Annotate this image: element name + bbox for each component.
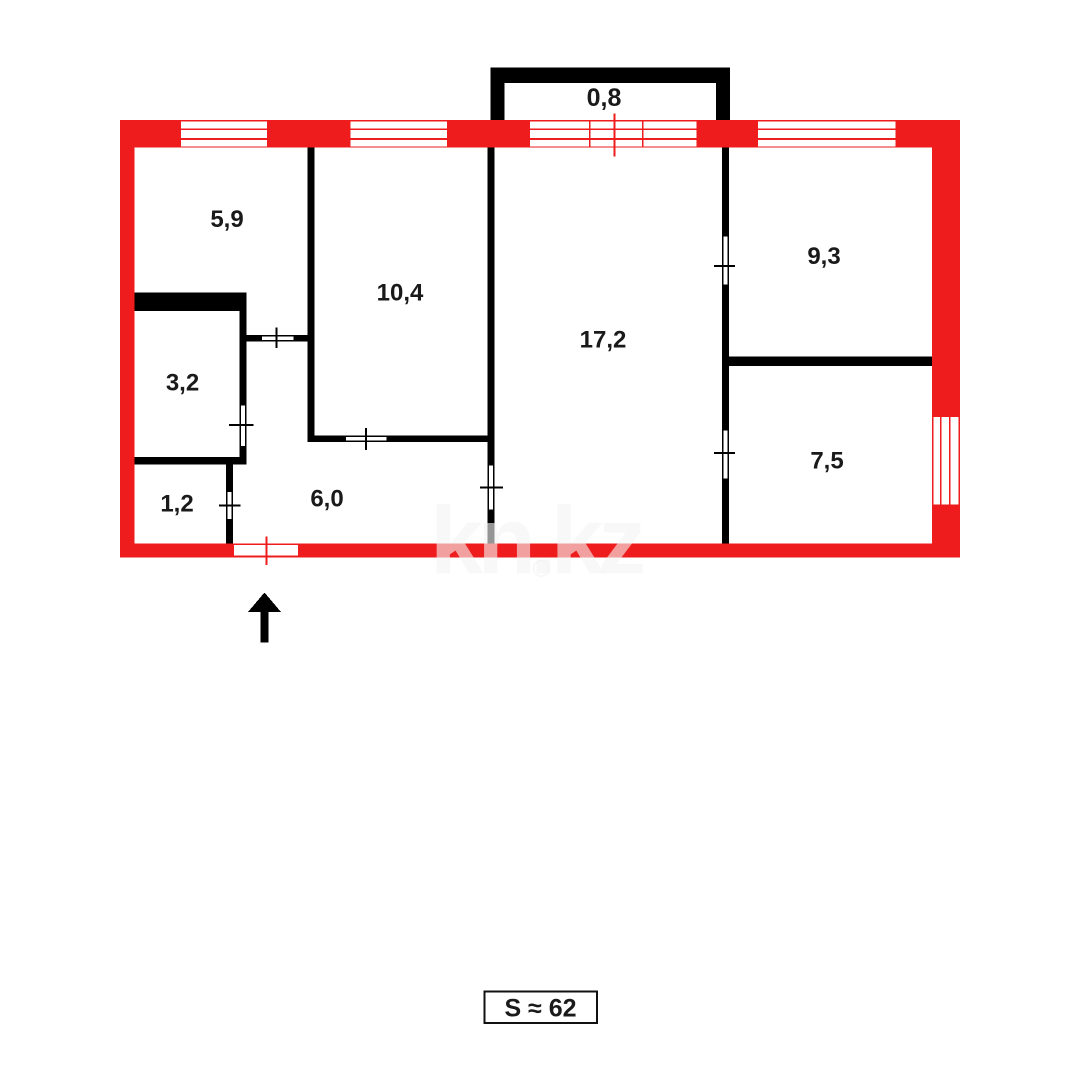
svg-text:S ≈ 62: S ≈ 62 [504, 995, 576, 1023]
svg-text:0,8: 0,8 [587, 84, 622, 112]
svg-text:9,3: 9,3 [807, 243, 840, 270]
svg-text:17,2: 17,2 [580, 327, 627, 354]
svg-text:1,2: 1,2 [160, 491, 193, 518]
svg-text:3,2: 3,2 [166, 370, 199, 397]
svg-text:kn.kz: kn.kz [430, 488, 643, 595]
svg-text:7,5: 7,5 [810, 448, 843, 475]
svg-text:10,4: 10,4 [377, 280, 424, 307]
svg-text:6,0: 6,0 [310, 486, 343, 513]
svg-text:5,9: 5,9 [210, 206, 243, 233]
